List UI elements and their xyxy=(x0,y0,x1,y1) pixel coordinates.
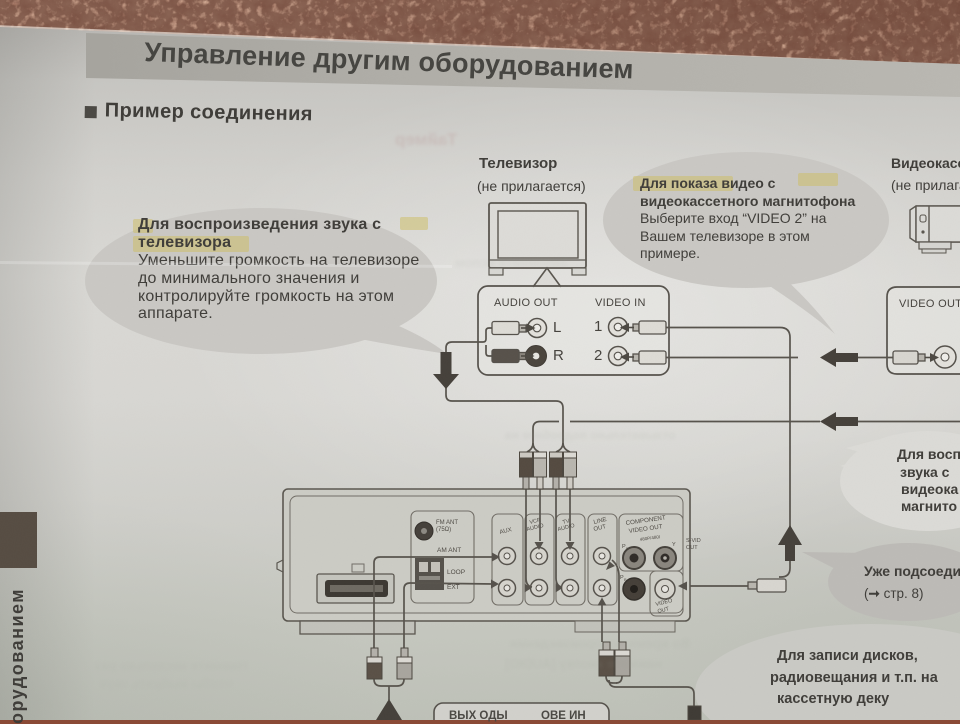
svg-text:FM ANT: FM ANT xyxy=(436,520,458,526)
svg-text:OUT: OUT xyxy=(686,545,698,551)
svg-text:(75Ω): (75Ω) xyxy=(436,527,451,533)
svg-text:AM ANT: AM ANT xyxy=(437,547,461,554)
svg-text:S-VID: S-VID xyxy=(686,538,701,544)
svg-text:EXT: EXT xyxy=(447,584,460,591)
svg-text:LOOP: LOOP xyxy=(447,569,465,576)
svg-text:B: B xyxy=(624,577,627,582)
svg-text:R: R xyxy=(626,546,629,551)
svg-text:Y: Y xyxy=(672,542,676,548)
